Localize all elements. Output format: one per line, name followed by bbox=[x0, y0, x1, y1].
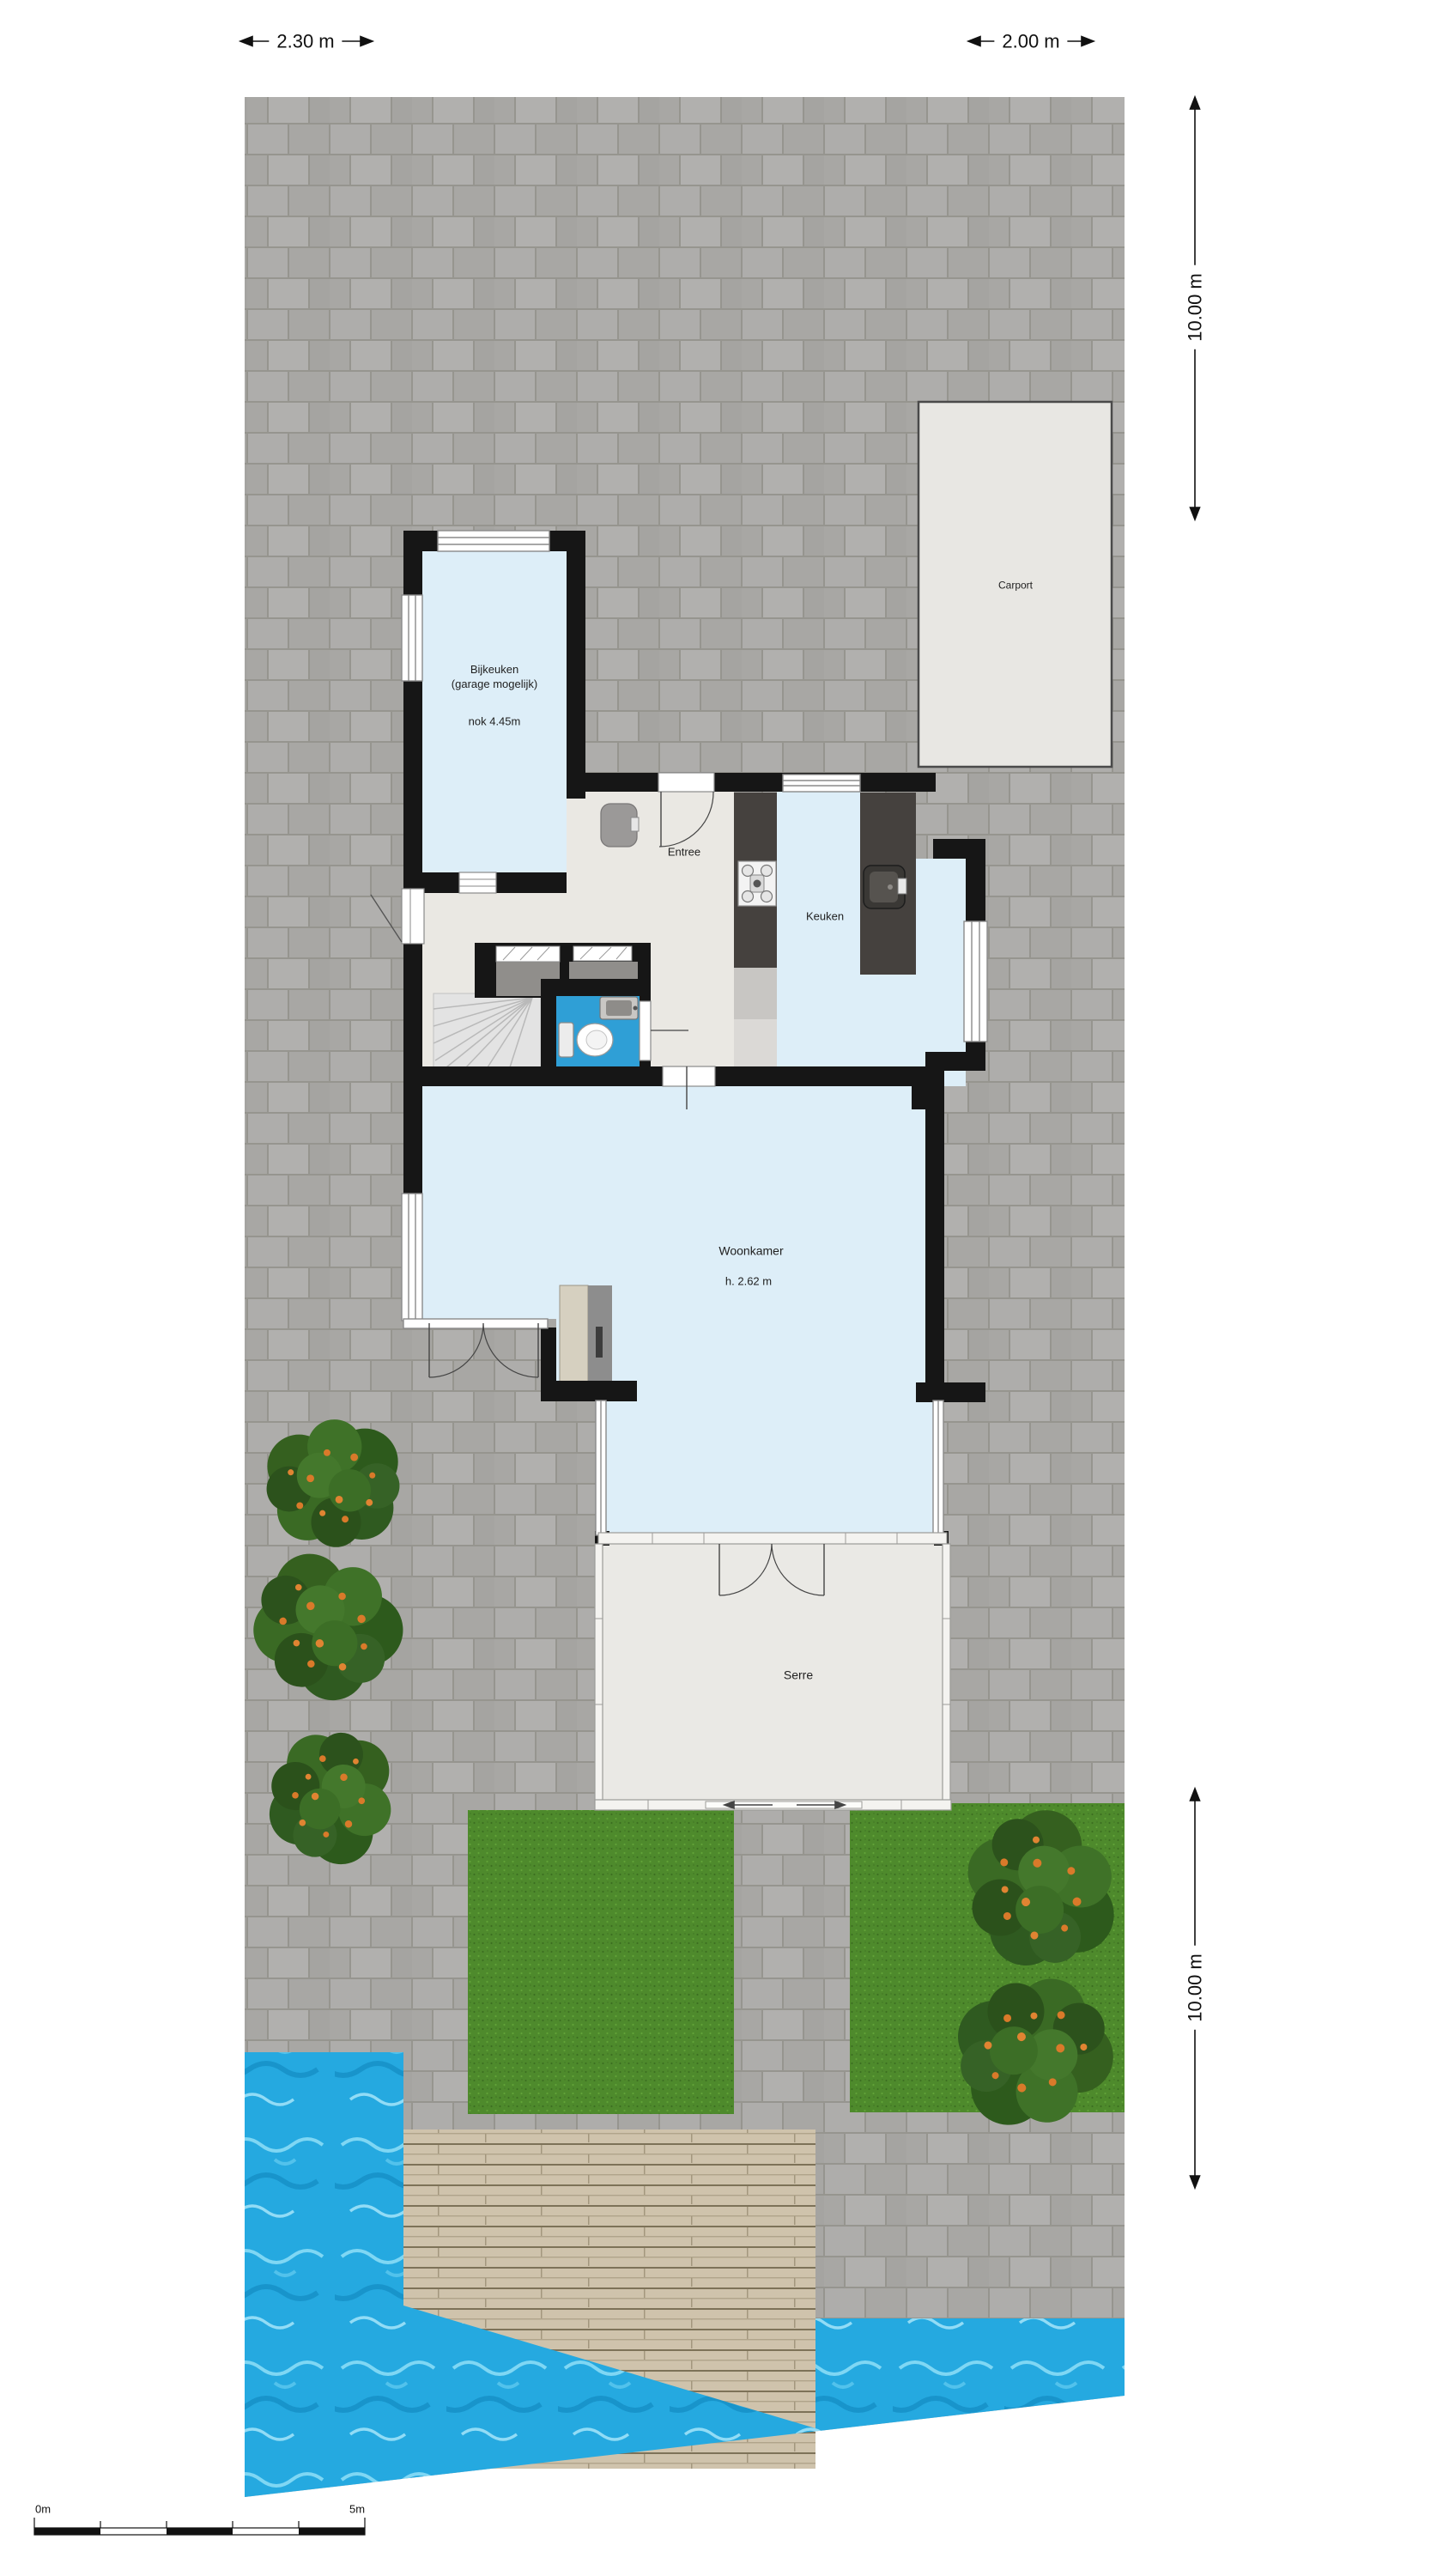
door-bijkeuken bbox=[459, 872, 496, 893]
dim-top-right: 2.00 m bbox=[994, 34, 1067, 49]
scale-bar bbox=[34, 2518, 365, 2535]
woonkamer-floor bbox=[422, 1086, 944, 1319]
door-side bbox=[402, 889, 424, 944]
scale-start-label: 0m bbox=[35, 2502, 51, 2517]
sink-icon bbox=[864, 866, 906, 908]
appliance-2 bbox=[734, 1019, 777, 1069]
window-keuken-east bbox=[964, 921, 987, 1042]
room-label-entree: Entree bbox=[668, 845, 700, 860]
toilet-icon bbox=[559, 1023, 573, 1057]
woonkamer-floor-south bbox=[605, 1401, 936, 1534]
room-label-carport: Carport bbox=[998, 579, 1033, 593]
floorplan-page: 2.30 m 2.00 m 10.00 m 10.00 m Bijkeuken … bbox=[0, 0, 1449, 2576]
sliding-door-arrows bbox=[706, 1801, 862, 1808]
window-bijkeuken-top bbox=[438, 531, 549, 551]
toilet-room bbox=[541, 979, 651, 1069]
room-label-woonkamer-height: h. 2.62 m bbox=[725, 1274, 772, 1289]
keuken-floor2 bbox=[860, 975, 916, 1069]
bijkeuken-floor bbox=[422, 551, 567, 872]
room-label-woonkamer: Woonkamer bbox=[718, 1244, 783, 1259]
dim-right-upper: 10.00 m bbox=[1188, 265, 1203, 349]
window-woonkamer-sw bbox=[403, 1319, 548, 1328]
door-toilet bbox=[640, 1001, 651, 1060]
bijkeuken-note: (garage mogelijk) bbox=[452, 677, 537, 690]
grass-left bbox=[468, 1810, 734, 2114]
stove-icon bbox=[738, 861, 776, 906]
boiler-icon bbox=[601, 804, 639, 847]
basin-icon bbox=[600, 997, 638, 1019]
fireplace-icon bbox=[560, 1285, 612, 1382]
bijkeuken-name: Bijkeuken bbox=[470, 663, 518, 676]
window-bijkeuken-left bbox=[402, 595, 422, 681]
door-woonkamer bbox=[663, 1066, 715, 1086]
staircase bbox=[433, 993, 541, 1067]
window-woonkamer-west bbox=[402, 1194, 422, 1321]
appliance-1 bbox=[734, 968, 777, 1019]
dim-right-lower: 10.00 m bbox=[1188, 1946, 1203, 2030]
scale-end-label: 5m bbox=[349, 2502, 365, 2517]
room-label-keuken: Keuken bbox=[806, 909, 844, 924]
room-label-bijkeuken: Bijkeuken (garage mogelijk) bbox=[452, 662, 537, 691]
room-label-serre: Serre bbox=[784, 1668, 813, 1683]
keuken-floor bbox=[777, 792, 860, 1069]
door-front bbox=[658, 773, 714, 792]
room-label-bijkeuken-nok: nok 4.45m bbox=[469, 714, 521, 729]
serre-floor bbox=[602, 1544, 944, 1801]
window-keuken-top bbox=[783, 775, 860, 792]
dim-top-left: 2.30 m bbox=[269, 34, 342, 49]
